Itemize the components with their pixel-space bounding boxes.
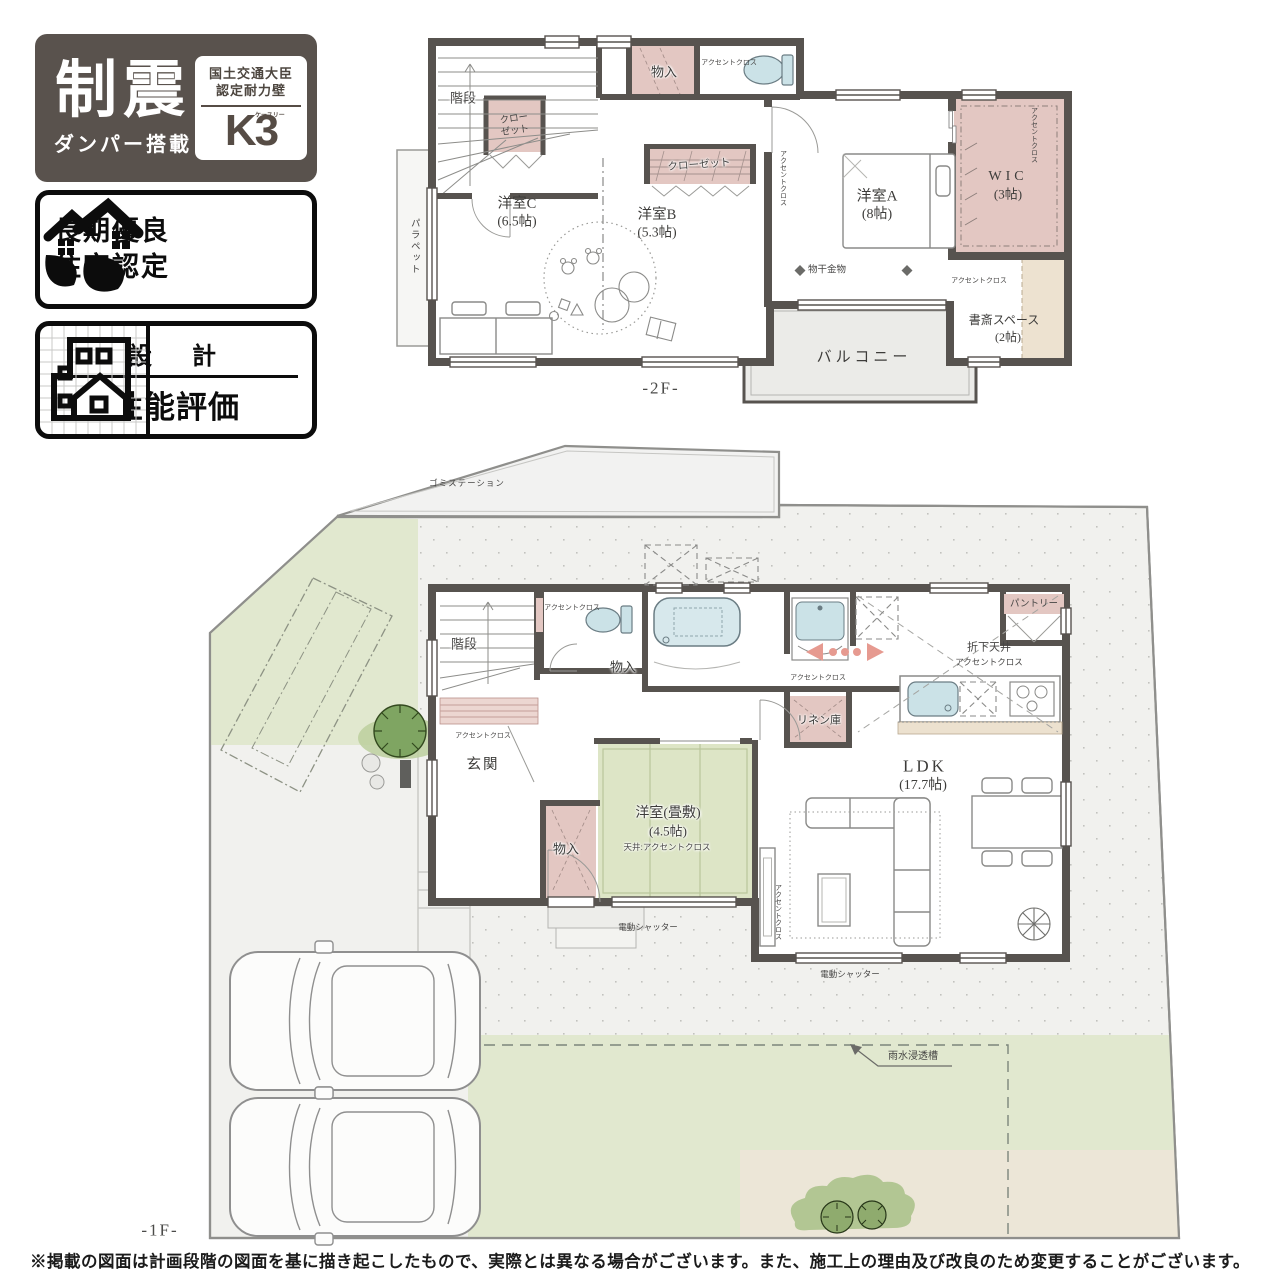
note-laundry-hardware: 物干金物 — [808, 265, 846, 275]
room-size-washitsu: (4.5帖) — [649, 825, 687, 838]
room-size-shosai: (2帖) — [995, 331, 1021, 343]
room-label-genkan: 玄関 — [467, 758, 500, 773]
room-label-linen: リネン庫 — [797, 716, 841, 727]
design-performance-badge: 設 計 性能評価 — [35, 321, 317, 439]
room-label-yoshitsu-c: 洋室C — [498, 197, 537, 212]
room-label-shosai: 書斎スペース — [969, 314, 1040, 326]
note-accent-cloth-genkan: アクセントクロス — [455, 733, 511, 740]
note-electric-shutter-2: 電動シャッター — [820, 970, 880, 979]
k3-cert-box: 国土交通大臣 認定耐力壁 K3 ケースリー — [195, 56, 307, 160]
note-orisage-tenjo: 折下天井 — [967, 643, 1011, 654]
room-label-washitsu: 洋室(畳敷) — [635, 807, 700, 821]
car — [230, 941, 480, 1099]
plant-icon — [1018, 908, 1050, 940]
note-rainwater-tank: 雨水浸透槽 — [888, 1052, 938, 1062]
seismic-damper-badge: 制震 ダンパー搭載 国土交通大臣 認定耐力壁 K3 ケースリー — [35, 34, 317, 182]
note-accent-cloth-toilet-1f: アクセントクロス — [544, 605, 600, 612]
room-label-wic: WIC — [988, 170, 1027, 184]
room-label-stairs-2f: 階段 — [450, 92, 476, 105]
badge-subtitle: ダンパー搭載 — [51, 128, 195, 157]
floorplan-page: 制震 ダンパー搭載 国土交通大臣 認定耐力壁 K3 ケースリー 長期優 — [0, 0, 1280, 1280]
room-size-yoshitsu-a: (8帖) — [862, 208, 892, 222]
room-label-balcony: バルコニー — [817, 351, 912, 366]
cert-line1: 国土交通大臣 — [201, 65, 301, 83]
badge-title: 制震 — [51, 60, 195, 122]
long-life-housing-badge: 長期優良 住宅認定 — [35, 190, 317, 309]
room-size-ldk: (17.7帖) — [899, 779, 947, 793]
floor-label-1f: -1F- — [141, 1222, 178, 1239]
note-accent-cloth-wic: アクセントクロス — [1031, 107, 1038, 163]
cert-line2: 認定耐力壁 — [201, 82, 301, 100]
k3-mark: K3 ケースリー — [201, 105, 301, 154]
room-label-ldk: LDK — [903, 758, 947, 775]
note-parapet: パラペット — [409, 218, 419, 276]
note-accent-cloth-ldk: アクセントクロス — [775, 884, 782, 940]
note-accent-cloth-shosai: アクセントクロス — [951, 278, 1007, 285]
note-garbage-station: ゴミステーション — [429, 479, 505, 488]
room-size-wic: (3帖) — [994, 188, 1022, 201]
room-label-pantry: パントリー — [1010, 599, 1058, 609]
disclaimer-text: ※掲載の図面は計画段階の図面を基に描き起こしたもので、実際とは異なる場合がござい… — [0, 1248, 1280, 1272]
room-label-storage-lower: 物入 — [553, 843, 579, 856]
note-accent-cloth-hall-2f: アクセントクロス — [780, 150, 787, 206]
room-label-storage-2f: 物入 — [651, 66, 677, 79]
room-size-yoshitsu-b: (5.3帖) — [637, 225, 676, 239]
room-label-yoshitsu-b: 洋室B — [638, 208, 677, 223]
note-washitsu-ceiling: 天井:アクセントクロス — [624, 843, 711, 852]
room-label-stairs-1f: 階段 — [451, 638, 477, 651]
k3-ruby: ケースリー — [255, 113, 285, 119]
note-accent-cloth-toilet-2f: アクセントクロス — [701, 60, 757, 67]
first-floor-plan — [427, 545, 1071, 963]
floor-label-2f: -2F- — [642, 380, 679, 397]
note-accent-cloth-linen: アクセントクロス — [790, 675, 846, 682]
house-leaf-icon — [40, 195, 144, 295]
room-size-yoshitsu-c: (6.5帖) — [497, 214, 536, 228]
room-label-yoshitsu-a: 洋室A — [857, 190, 898, 205]
note-electric-shutter-1: 電動シャッター — [618, 923, 678, 932]
grid-house-icon — [40, 326, 150, 434]
car — [230, 1087, 480, 1245]
garbage-station-area — [337, 446, 779, 517]
note-orisage-accent: アクセントクロス — [955, 658, 1023, 667]
room-label-storage-upper: 物入 — [610, 661, 636, 674]
